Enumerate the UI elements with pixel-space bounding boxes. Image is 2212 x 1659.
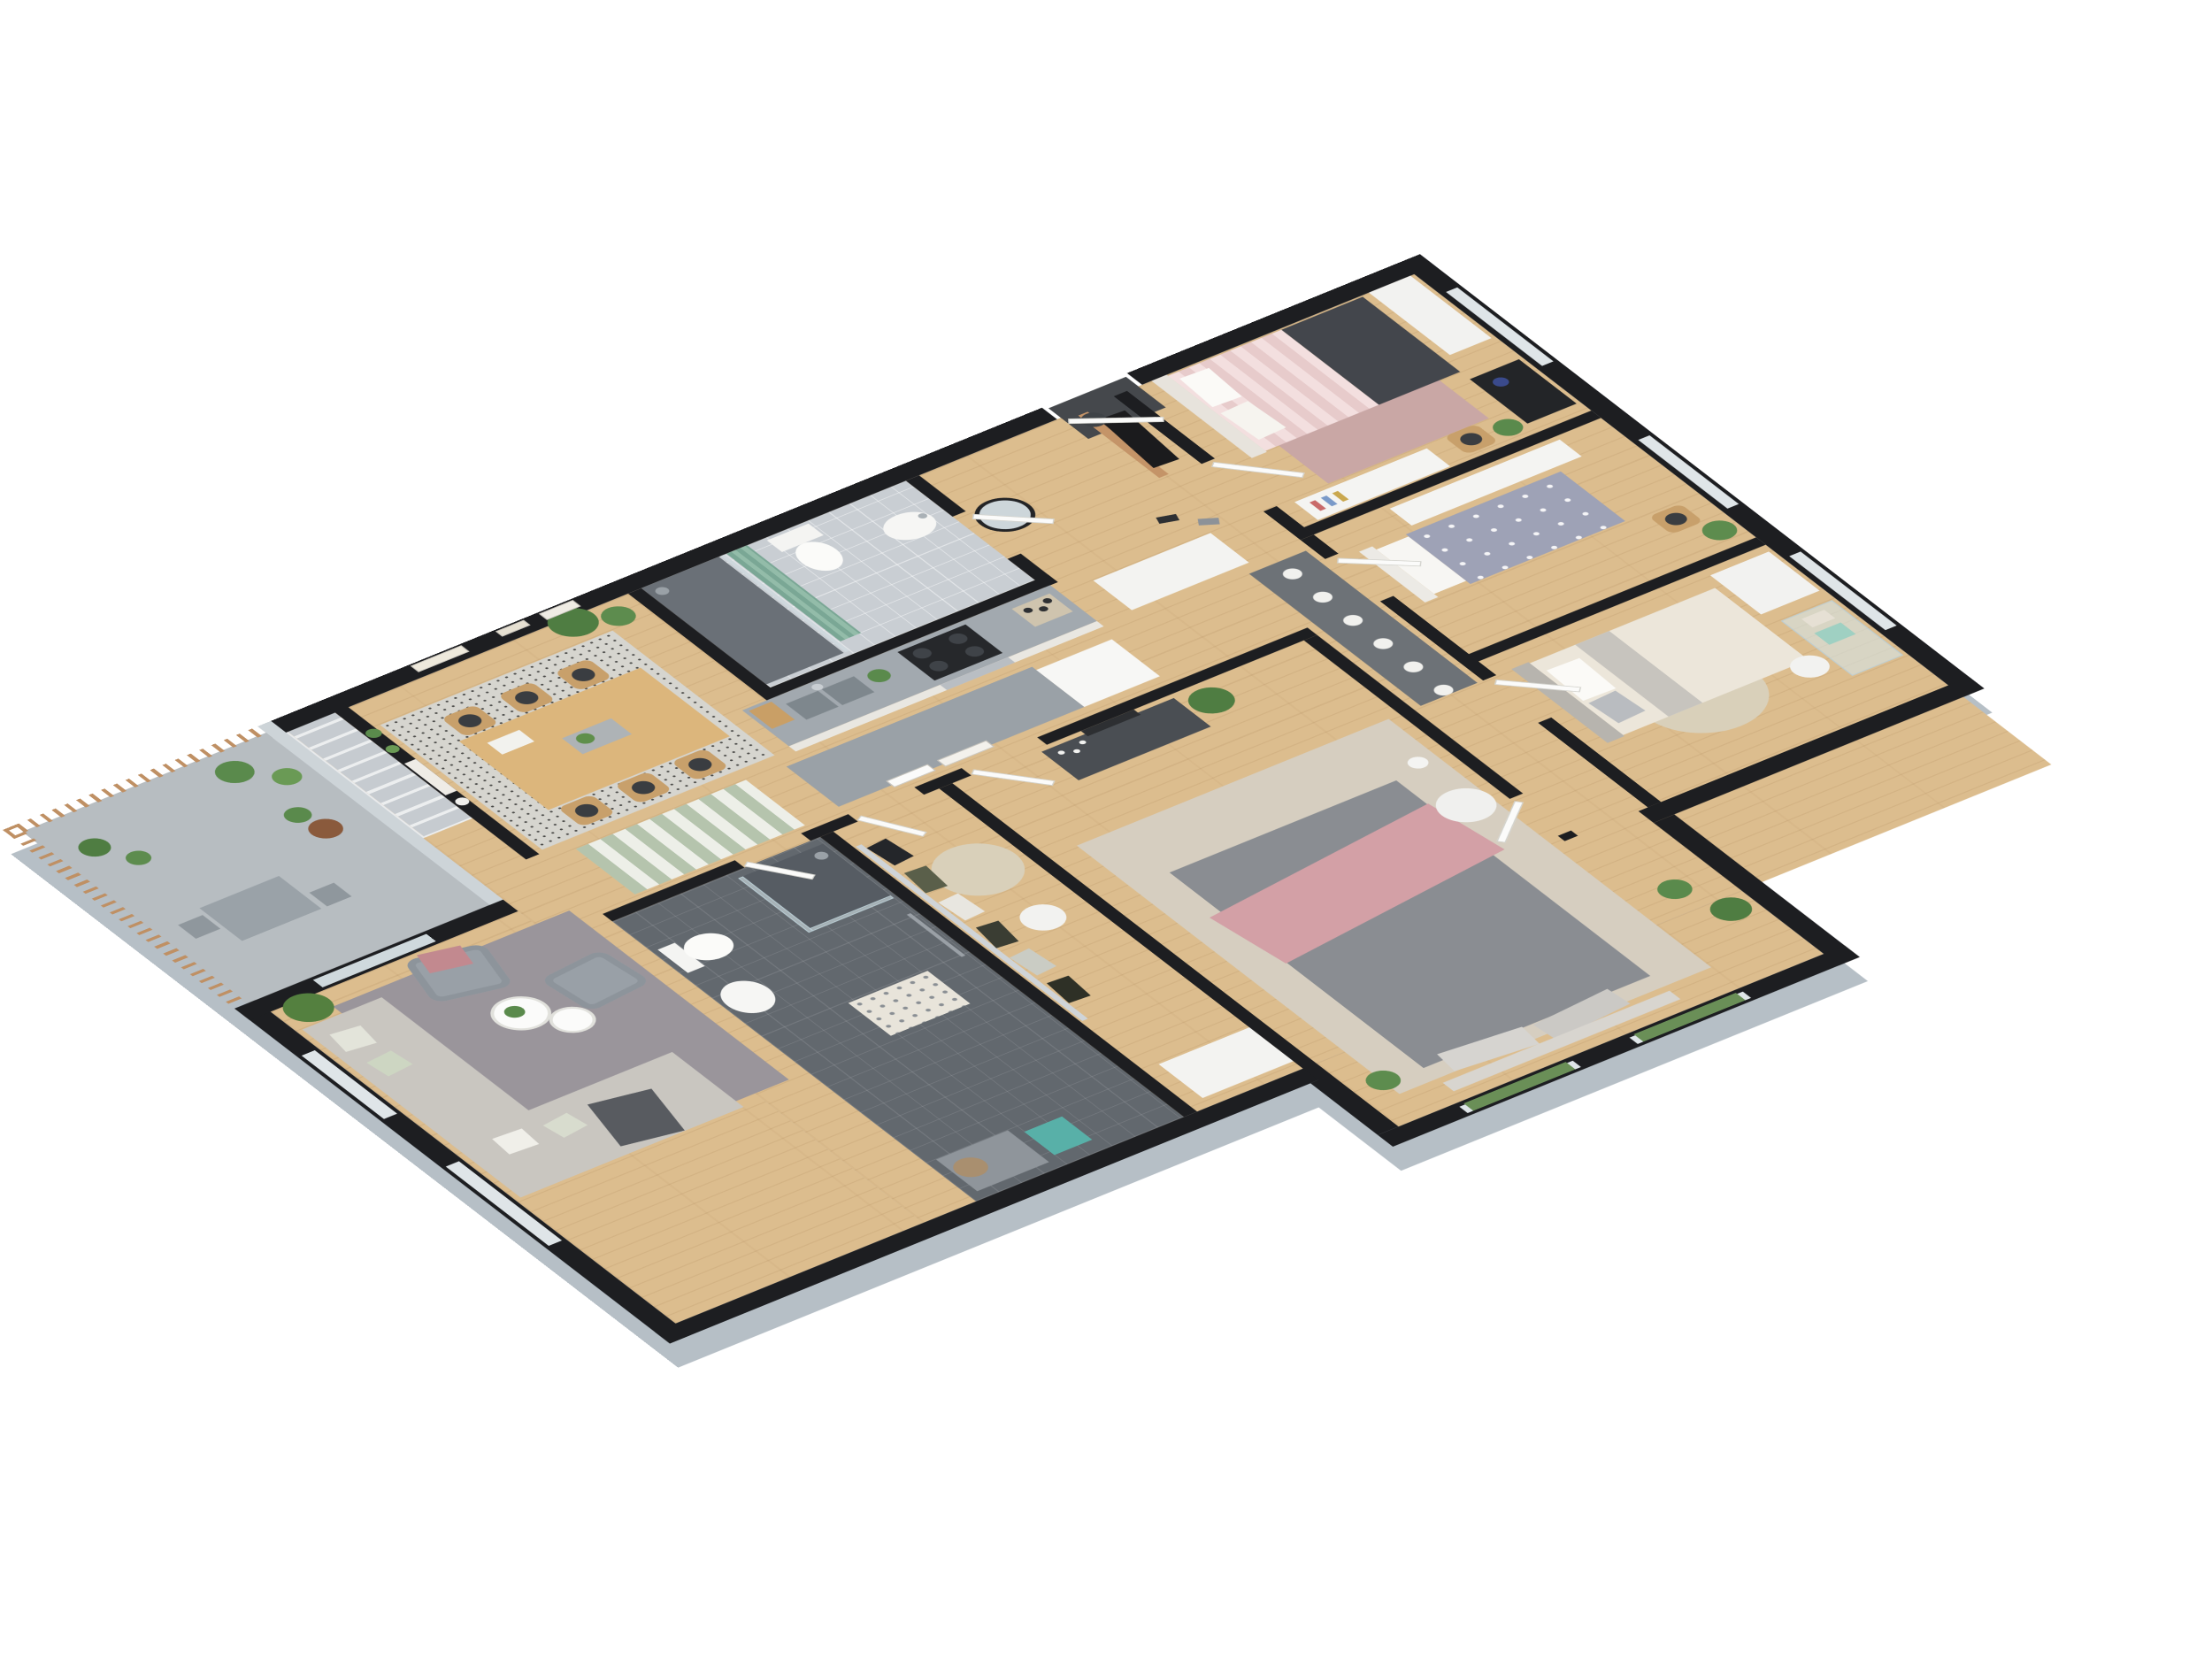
floor-plan-stage <box>0 0 2212 1659</box>
apartment-isometric-plan <box>3 254 2209 1438</box>
